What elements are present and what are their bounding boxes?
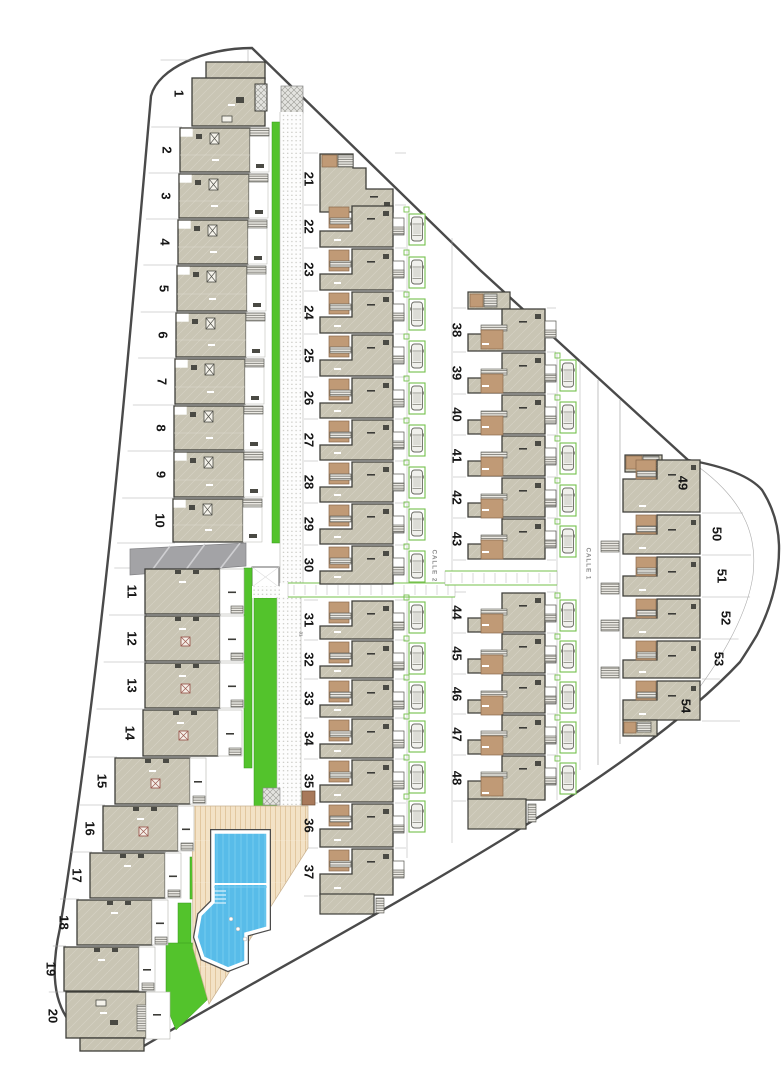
car-icon (561, 488, 575, 512)
plot-number: 30 (302, 558, 317, 572)
house-11 (145, 569, 244, 614)
plot-number: 7 (155, 378, 170, 385)
car-icon (410, 470, 424, 494)
house-20 (66, 992, 170, 1051)
house-19 (64, 947, 155, 991)
plot-number: 16 (83, 821, 98, 835)
house-26 (320, 378, 404, 418)
plot-number: 31 (302, 613, 317, 627)
car-icon (410, 386, 424, 410)
car-icon (561, 644, 575, 668)
house-32 (320, 641, 404, 678)
plot-number: 32 (302, 652, 317, 666)
house-12 (145, 616, 244, 661)
plot-number: 8 (154, 424, 169, 431)
car-icon (410, 260, 424, 284)
house-25 (320, 335, 404, 376)
car-icon (410, 724, 424, 748)
plot-number: 41 (450, 449, 465, 463)
house-14 (143, 710, 242, 756)
house-6 (176, 313, 265, 357)
car-icon (410, 302, 424, 326)
car-icon (410, 685, 424, 709)
plot-number: 53 (712, 652, 727, 666)
car-icon (410, 554, 424, 578)
plot-number: 46 (450, 687, 465, 701)
plot-number: 21 (302, 172, 317, 186)
plot-number: 19 (44, 962, 59, 976)
house-31 (320, 601, 404, 639)
plot-number: 12 (125, 631, 140, 645)
house-36 (320, 804, 404, 847)
car-icon (561, 685, 575, 709)
house-9 (174, 452, 263, 497)
plot-number: 49 (676, 476, 691, 490)
plot-number: 13 (125, 678, 140, 692)
plot-number: 25 (302, 348, 317, 362)
car-icon (410, 765, 424, 789)
house-10 (173, 499, 262, 542)
house-23 (320, 249, 404, 290)
plot-number: 28 (302, 475, 317, 489)
house-17 (90, 853, 181, 898)
house-8 (174, 406, 263, 450)
plot-number: 3 (159, 192, 174, 199)
plot-number: 26 (302, 391, 317, 405)
plot-number: 9 (154, 471, 169, 478)
car-icon (410, 605, 424, 629)
plot-number: 18 (57, 915, 72, 929)
plot-number: 22 (302, 219, 317, 233)
plot-number: 43 (450, 532, 465, 546)
pool-step-dot (236, 927, 240, 931)
car-icon (561, 725, 575, 749)
house-35 (320, 760, 404, 802)
street-label-calle-1: CALLE 1 (585, 548, 592, 581)
plot-number: 27 (302, 433, 317, 447)
car-icon (410, 344, 424, 368)
plot-number: 54 (679, 699, 694, 714)
plot-number: 24 (302, 305, 317, 320)
car-icon (561, 603, 575, 627)
house-15 (115, 758, 206, 804)
pool-step-dot (243, 937, 247, 941)
pool-step-dot (229, 917, 233, 921)
crossing-calle2 (288, 583, 455, 597)
plot-number: 4 (158, 238, 173, 246)
house-3 (179, 174, 268, 218)
site-plan-page: 1234567891011121314151617181920212223242… (0, 0, 781, 1080)
site-plan: 1234567891011121314151617181920212223242… (0, 0, 781, 1080)
plot-number: 15 (95, 774, 110, 788)
plot-number: 14 (123, 726, 138, 741)
plot-number: 20 (46, 1009, 61, 1023)
house-27 (320, 420, 404, 460)
car-icon (561, 446, 575, 470)
crossing-calle1 (445, 571, 557, 585)
car-icon (561, 766, 575, 790)
car-icon (410, 646, 424, 670)
plot-number: 1 (172, 90, 187, 97)
plot-number: 38 (450, 323, 465, 337)
house-2 (180, 128, 269, 172)
plot-number: 52 (719, 611, 734, 625)
plot-number: 34 (302, 731, 317, 746)
car-icon (561, 405, 575, 429)
house-30 (320, 546, 404, 584)
plot-number: 44 (450, 605, 465, 620)
plot-number: 23 (302, 262, 317, 276)
plot-number: 39 (450, 366, 465, 380)
house-34 (320, 719, 404, 758)
plot-number: 37 (302, 865, 317, 879)
plot-number: 40 (450, 407, 465, 421)
car-icon (410, 217, 424, 241)
house-22 (320, 206, 404, 247)
house-28 (320, 462, 404, 502)
plot-number: 36 (302, 818, 317, 832)
plot-number: 11 (125, 585, 140, 599)
car-icon (410, 804, 424, 828)
house-24 (320, 292, 404, 333)
car-icon (561, 529, 575, 553)
house-4 (178, 220, 267, 264)
plot-number: 51 (715, 569, 730, 583)
plot-number: 42 (450, 490, 465, 504)
plot-number: 17 (70, 868, 85, 882)
utility-box (252, 567, 279, 587)
plot-number: 6 (156, 331, 171, 338)
plot-number: 33 (302, 691, 317, 705)
house-29 (320, 504, 404, 544)
house-16 (103, 806, 194, 851)
plot-number: 50 (710, 527, 725, 541)
house-18 (77, 900, 168, 945)
house-33 (320, 680, 404, 717)
plot-number: 29 (302, 517, 317, 531)
plot-number: 5 (157, 285, 172, 292)
plot-number: 48 (450, 771, 465, 785)
house-13 (145, 663, 244, 708)
car-icon (410, 428, 424, 452)
house-5 (177, 266, 266, 311)
plot-number: 35 (302, 774, 317, 788)
street-label-calle-2: CALLE 2 (431, 550, 438, 583)
plot-number: 45 (450, 646, 465, 660)
plot-number: 47 (450, 727, 465, 741)
plot-number: 2 (160, 146, 175, 153)
small-annotation: 31 (299, 631, 304, 637)
house-7 (175, 359, 264, 404)
car-icon (561, 363, 575, 387)
plot-number: 10 (153, 513, 168, 527)
car-icon (410, 512, 424, 536)
